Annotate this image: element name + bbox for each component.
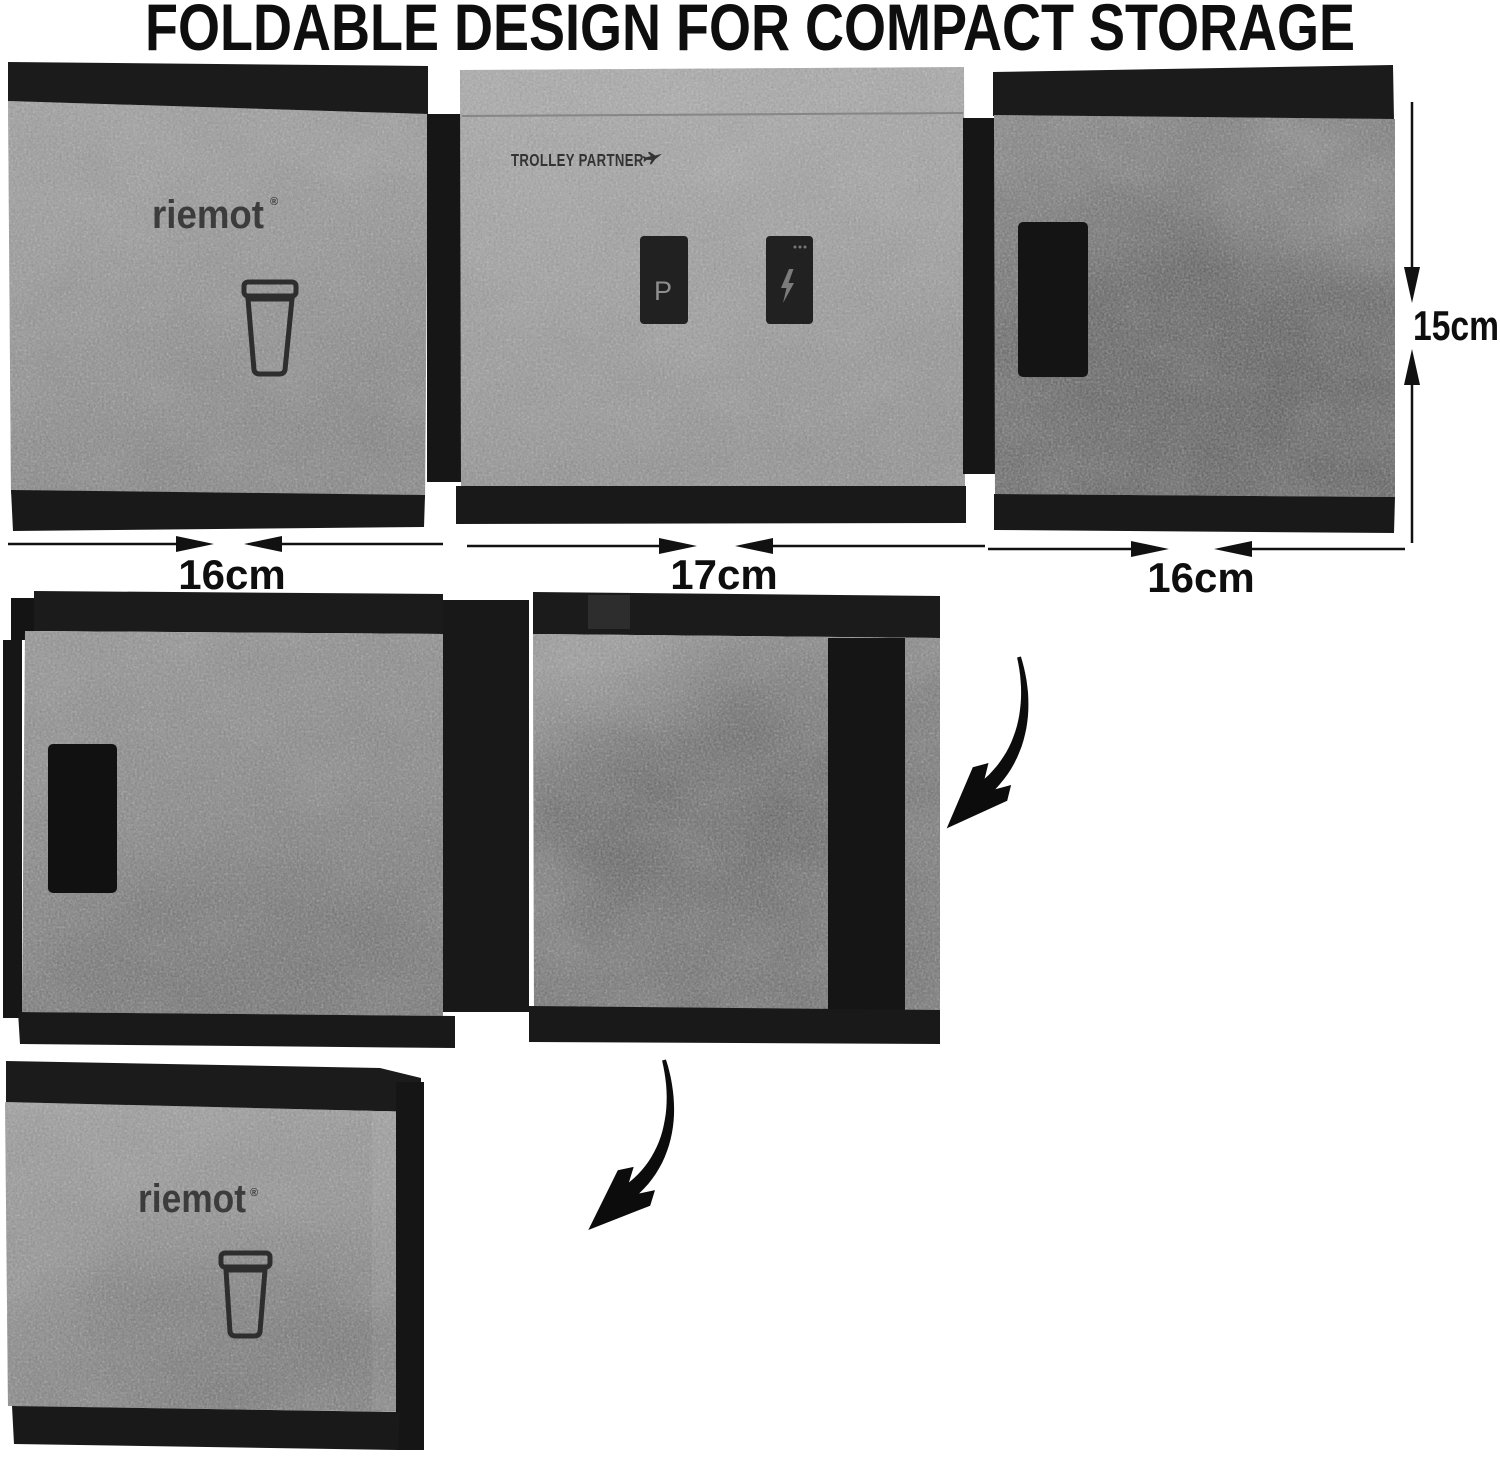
svg-text:TROLLEY PARTNER: TROLLEY PARTNER <box>511 151 644 170</box>
svg-text:riemot: riemot <box>138 1177 246 1221</box>
svg-text:®: ® <box>250 1187 258 1199</box>
svg-text:FOLDABLE DESIGN FOR COMPACT ST: FOLDABLE DESIGN FOR COMPACT STORAGE <box>145 0 1355 64</box>
svg-text:P: P <box>654 276 672 306</box>
svg-text:15cm: 15cm <box>1413 302 1499 349</box>
svg-text:17cm: 17cm <box>670 551 777 598</box>
svg-text:16cm: 16cm <box>178 551 285 598</box>
svg-text:riemot: riemot <box>152 193 264 237</box>
svg-text:®: ® <box>270 196 278 208</box>
svg-text:16cm: 16cm <box>1147 554 1254 601</box>
